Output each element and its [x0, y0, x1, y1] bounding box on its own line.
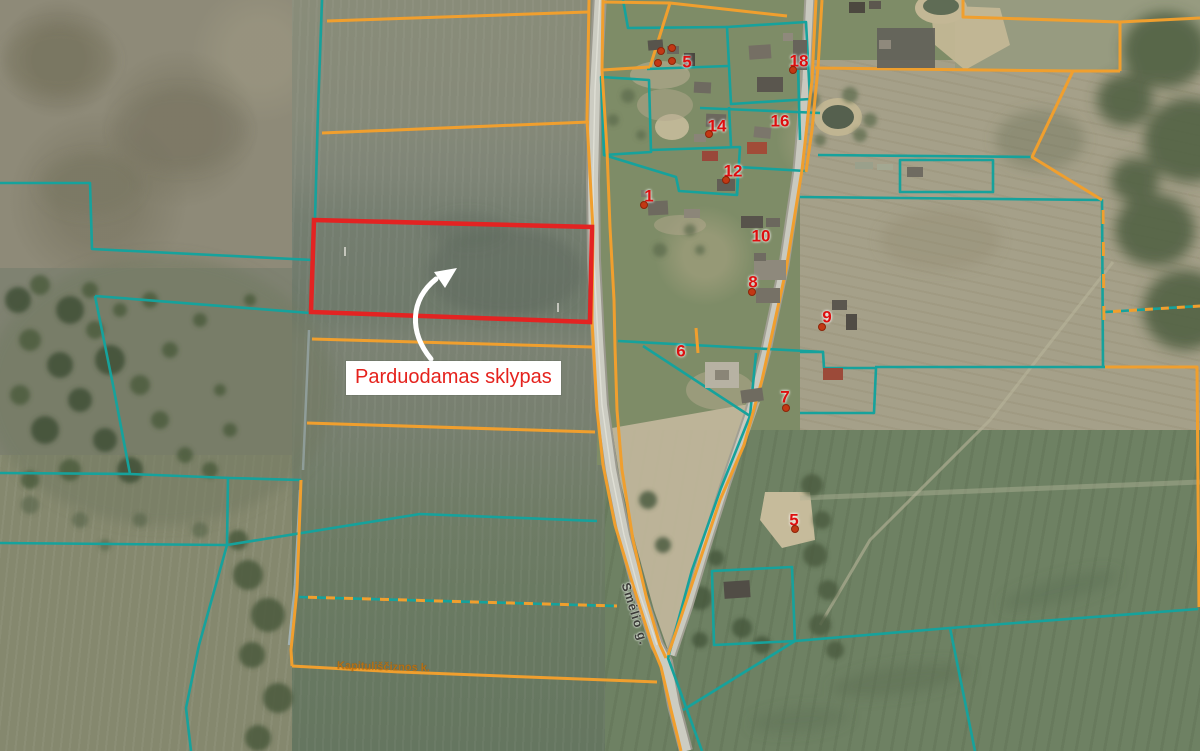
map-canvas[interactable]: 51814161211089675 Parduodamas sklypas Sm…	[0, 0, 1200, 751]
house-marker-dot	[722, 176, 730, 184]
house-marker-dot	[668, 57, 676, 65]
house-marker-dot	[789, 66, 797, 74]
house-number-marker: 5	[682, 54, 691, 71]
village-name-label: Kapituliščiznos k.	[337, 660, 430, 674]
house-marker-dot	[640, 201, 648, 209]
house-marker-dot	[818, 323, 826, 331]
house-marker-dot	[654, 59, 662, 67]
house-marker-dot	[705, 130, 713, 138]
house-marker-dot	[782, 404, 790, 412]
sale-annotation-label: Parduodamas sklypas	[346, 361, 561, 395]
farm-track	[820, 262, 1113, 625]
house-marker-dot	[791, 525, 799, 533]
house-marker-dot	[657, 47, 665, 55]
farm-track-horizontal	[800, 482, 1200, 498]
house-number-marker: 6	[676, 343, 685, 360]
cadastral-overlay	[0, 0, 1200, 751]
house-number-marker: 16	[771, 113, 790, 130]
house-number-marker: 10	[752, 228, 771, 245]
house-marker-dot	[668, 44, 676, 52]
house-marker-dot	[748, 288, 756, 296]
